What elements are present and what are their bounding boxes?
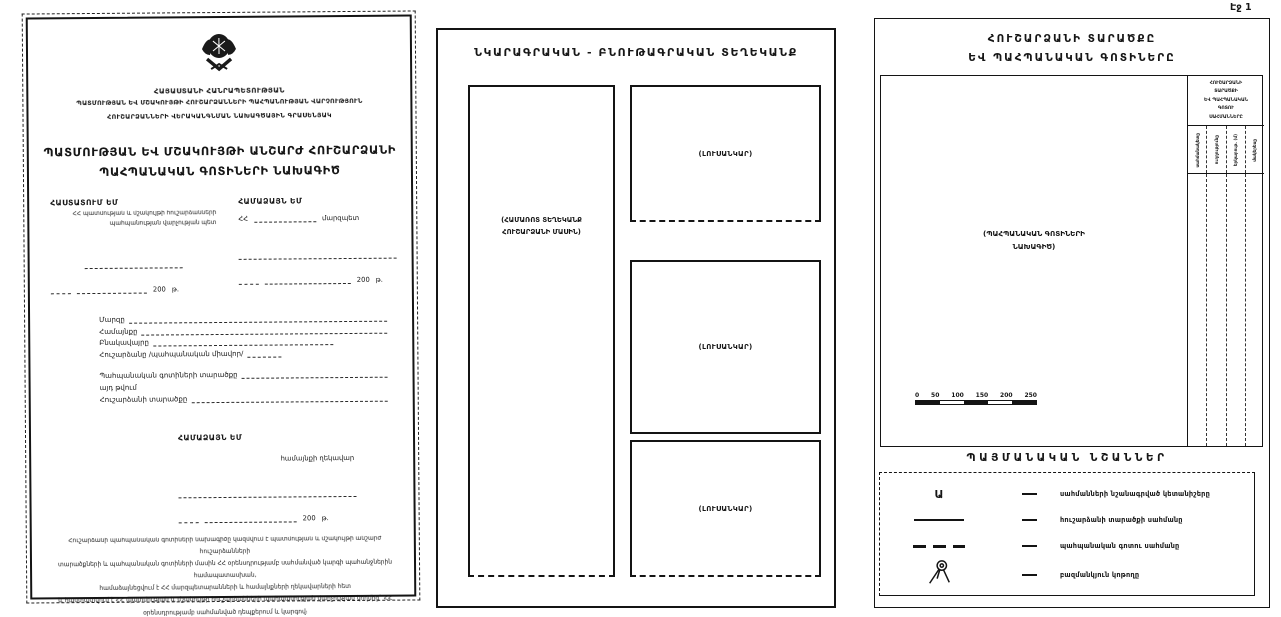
signature-line [178, 482, 368, 502]
table-header-line: ՀՈՒՇԱՐՁԱՆԻ [1189, 80, 1263, 88]
field-label: Պահպանական գոտիների տարածքը [100, 371, 242, 380]
community-head-role: համայնքի ղեկավար [178, 454, 368, 463]
approve-heading: ՀԱՍՏԱՏՈՒՄ ԵՄ [50, 197, 216, 207]
page-3-title: ՀՈՒՇԱՐՁԱՆԻ ՏԱՐԱԾՔԸ ԵՎ ՊԱՀՊԱՆԱԿԱՆ ԳՈՏԻՆԵՐ… [875, 30, 1269, 68]
field-fill-line [153, 337, 333, 346]
page-3-plan-sheet: ՀՈՒՇԱՐՁԱՆԻ ՏԱՐԱԾՔԸ ԵՎ ՊԱՀՊԱՆԱԿԱՆ ԳՈՏԻՆԵՐ… [874, 18, 1270, 608]
year-placeholder: 200 [303, 514, 316, 522]
scale-tick: 150 [976, 392, 989, 399]
photo-label: (ԼՈՒՍԱՆԿԱՐ) [699, 343, 753, 351]
field-row: այդ թվում [100, 382, 388, 392]
legend-title: ՊԱՅՄԱՆԱԿԱՆ ՆՇԱՆՆԵՐ [875, 452, 1259, 464]
field-row: Պահպանական գոտիների տարածքը [100, 370, 388, 380]
governor-line: ՀՀ մարզպետ [238, 214, 404, 223]
field-row: Համայնքը [99, 325, 387, 335]
legend-separator-dash [1022, 519, 1037, 521]
date-line: 200 թ. [51, 285, 217, 294]
brief-information-label-line: (ՀԱՄԱՌՈՏ ՏԵՂԵԿԱՆՔ [474, 215, 609, 227]
table-header-line: ԳՈՏՈՒ [1189, 105, 1263, 113]
approve-signature-block: ՀԱՍՏԱՏՈՒՄ ԵՄ ՀՀ պատմության և մշակույթի հ… [50, 197, 217, 294]
armenia-coat-of-arms-icon [198, 31, 240, 77]
legend-entry-text: բազմանկյուն կոթողը [1060, 571, 1254, 579]
brief-information-box: (ՀԱՄԱՌՈՏ ՏԵՂԵԿԱՆՔ ՀՈՒՇԱՐՁԱՆԻ ՄԱՍԻՆ) [468, 85, 615, 577]
legend-row: պահպանական գոտու սահմանը [880, 533, 1254, 559]
scale-tick: 0 [915, 392, 919, 399]
boundaries-table-header: ՀՈՒՇԱՐՁԱՆԻ ՏԱՐԱԾՔԻ ԵՎ ՊԱՀՊԱՆԱԿԱՆ ԳՈՏՈՒ Ս… [1188, 76, 1264, 126]
table-header-line: ԵՎ ՊԱՀՊԱՆԱԿԱՆ [1189, 97, 1263, 105]
scale-tick: 100 [951, 392, 964, 399]
scanned-document-sheet: ՀԱՅԱՍՏԱՆԻ ՀԱՆՐԱՊԵՏՈՒԹՅԱՆ ՊԱՏՄՈՒԹՅԱՆ ԵՎ Մ… [0, 0, 1281, 617]
scale-tick-labels: 0 50 100 150 200 250 [915, 392, 1037, 399]
legend-entry-text: պահպանական գոտու սահմանը [1060, 542, 1254, 550]
field-row: Մարզը [99, 314, 387, 324]
signature-line [239, 244, 405, 264]
plan-area-label-line: (ՊԱՀՊԱՆԱԿԱՆ ԳՈՏԻՆԵՐԻ [881, 228, 1187, 241]
year-suffix: թ. [322, 514, 329, 522]
plan-area-label: (ՊԱՀՊԱՆԱԿԱՆ ԳՈՏԻՆԵՐԻ ՆԱԽԱԳԻԾ) [881, 228, 1187, 253]
field-fill-line [191, 393, 388, 403]
boundaries-table: ՀՈՒՇԱՐՁԱՆԻ ՏԱՐԱԾՔԻ ԵՎ ՊԱՀՊԱՆԱԿԱՆ ԳՈՏՈՒ Ս… [1187, 76, 1264, 446]
agree-heading: ՀԱՄԱՁԱՅՆ ԵՄ [178, 432, 368, 442]
agree-community-block: ՀԱՄԱՁԱՅՆ ԵՄ համայնքի ղեկավար 200 թ. [178, 432, 369, 523]
table-header-line: ՍԱՀՄԱՆՆԵՐԸ [1189, 114, 1263, 122]
legend-row: Ա սահմանների նշանագրված կետանիշերը [880, 481, 1254, 507]
footnote-line: տարածքների և պահպանական գոտիների մասին Հ… [51, 557, 399, 584]
photo-box: (ԼՈՒՍԱՆԿԱՐ) [630, 260, 821, 434]
table-header-line: ՏԱՐԱԾՔԻ [1189, 88, 1263, 96]
page-2-descriptive-sheet: ՆԿԱՐԱԳՐԱԿԱՆ - ԲՆՈՒԹԱԳՐԱԿԱՆ ՏԵՂԵԿԱՆՔ (ՀԱՄ… [436, 28, 836, 608]
legend-box: Ա սահմանների նշանագրված կետանիշերը հուշա… [879, 472, 1255, 596]
year-placeholder: 200 [153, 285, 166, 293]
plan-drawing-frame: (ՊԱՀՊԱՆԱԿԱՆ ԳՈՏԻՆԵՐԻ ՆԱԽԱԳԻԾ) 0 50 100 1… [880, 75, 1263, 447]
field-row: Հուշարձանը /պահպանական միավոր/ [99, 348, 387, 358]
plan-area-label-line: ՆԱԽԱԳԻԾ) [881, 241, 1187, 254]
issuing-organization-block: ՀԱՅԱՍՏԱՆԻ ՀԱՆՐԱՊԵՏՈՒԹՅԱՆ ՊԱՏՄՈՒԹՅԱՆ ԵՎ Մ… [23, 85, 415, 121]
brief-information-label: (ՀԱՄԱՌՈՏ ՏԵՂԵԿԱՆՔ ՀՈՒՇԱՐՁԱՆԻ ՄԱՍԻՆ) [474, 215, 609, 238]
governor-role: մարզպետ [322, 214, 359, 222]
page-number-label: Էջ 1 [1230, 2, 1252, 13]
field-label: այդ թվում [100, 384, 141, 392]
legend-entry-text: հուշարձանի տարածքի սահմանը [1060, 516, 1254, 524]
org-line: ՊԱՏՄՈՒԹՅԱՆ ԵՎ ՄՇԱԿՈՒՅԹԻ ՀՈՒՇԱՐՁԱՆՆԵՐԻ ՊԱ… [23, 97, 415, 107]
brief-information-label-line: ՀՈՒՇԱՐՁԱՆԻ ՄԱՍԻՆ) [474, 227, 609, 239]
footnote-paragraph: Հուշարձանի պահպանական գոտիների նախագիծը … [51, 533, 400, 617]
field-label: Հուշարձանի տարածքը [100, 395, 192, 404]
column-header: սահմանակետը [1195, 133, 1200, 168]
document-title-line: ՊԱՀՊԱՆԱԿԱՆ ԳՈՏԻՆԵՐԻ ՆԱԽԱԳԻԾ [24, 160, 416, 183]
scale-strip [915, 400, 1037, 405]
legend-separator-dash [1022, 493, 1037, 495]
field-row: Բնակավայրը [99, 337, 387, 347]
protective-zones-plan-area: (ՊԱՀՊԱՆԱԿԱՆ ԳՈՏԻՆԵՐԻ ՆԱԽԱԳԻԾ) 0 50 100 1… [881, 76, 1187, 446]
column-header: երկարութ. (մ) [1233, 134, 1238, 166]
photo-box: (ԼՈՒՍԱՆԿԱՐ) [630, 440, 821, 577]
page-2-title: ՆԿԱՐԱԳՐԱԿԱՆ - ԲՆՈՒԹԱԳՐԱԿԱՆ ՏԵՂԵԿԱՆՔ [438, 46, 834, 59]
map-scale-bar: 0 50 100 150 200 250 [915, 392, 1037, 405]
approve-subtitle: ՀՀ պատմության և մշակույթի հուշարձանների … [50, 209, 216, 230]
field-label: Բնակավայրը [99, 339, 153, 347]
monument-fields-list: Մարզը Համայնքը Բնակավայրը Հուշարձանը /պա… [99, 314, 388, 407]
approve-subtitle-line: պահպանության վարչության պետ [50, 219, 216, 230]
legend-entry-text: սահմանների նշանագրված կետանիշերը [1060, 490, 1254, 498]
photo-box: (ԼՈՒՍԱՆԿԱՐ) [630, 85, 821, 222]
tripod-marker-icon [925, 559, 953, 591]
country-prefix: ՀՀ [238, 215, 248, 223]
boundary-point-letter-symbol: Ա [935, 488, 944, 501]
page-1-cover-sheet: ՀԱՅԱՍՏԱՆԻ ՀԱՆՐԱՊԵՏՈՒԹՅԱՆ ՊԱՏՄՈՒԹՅԱՆ ԵՎ Մ… [22, 10, 421, 603]
footnote-line: Հուշարձանի պահպանական գոտիների նախագիծը … [51, 533, 399, 560]
document-title: ՊԱՏՄՈՒԹՅԱՆ ԵՎ ՄՇԱԿՈՒՅԹԻ ԱՆՇԱՐԺ ՀՈՒՇԱՐՁԱՆ… [24, 139, 416, 182]
scale-tick: 50 [931, 392, 939, 399]
document-title-line: ՊԱՏՄՈՒԹՅԱՆ ԵՎ ՄՇԱԿՈՒՅԹԻ ԱՆՇԱՐԺ ՀՈՒՇԱՐՁԱՆ… [24, 139, 416, 162]
agree-heading: ՀԱՄԱՁԱՅՆ ԵՄ [238, 196, 404, 206]
photo-label: (ԼՈՒՍԱՆԿԱՐ) [699, 505, 753, 513]
legend-row: հուշարձանի տարածքի սահմանը [880, 507, 1254, 533]
table-column-headers: սահմանակետը ուղղությունը երկարութ. (մ) մ… [1188, 126, 1264, 174]
year-suffix: թ. [376, 276, 383, 284]
field-label: Հուշարձանը /պահպանական միավոր/ [99, 350, 247, 359]
org-line: ՀԱՅԱՍՏԱՆԻ ՀԱՆՐԱՊԵՏՈՒԹՅԱՆ [23, 85, 415, 96]
year-suffix: թ. [172, 285, 179, 293]
column-header: մակերեսը [1252, 139, 1257, 162]
field-label: Մարզը [99, 316, 129, 324]
table-empty-body [1188, 174, 1264, 446]
solid-boundary-line-symbol [914, 519, 964, 521]
dashed-boundary-line-symbol [913, 545, 965, 548]
date-line: 200 թ. [179, 514, 369, 523]
field-fill-line [242, 370, 388, 379]
field-fill-line [141, 325, 387, 335]
date-line: 200 թ. [239, 276, 405, 285]
photo-label: (ԼՈՒՍԱՆԿԱՐ) [699, 150, 753, 158]
field-row: Հուշարձանի տարածքը [100, 393, 388, 403]
field-label: Համայնքը [99, 327, 141, 335]
agree-governor-block: ՀԱՄԱՁԱՅՆ ԵՄ ՀՀ մարզպետ 200 թ. [238, 196, 405, 285]
year-placeholder: 200 [357, 276, 370, 284]
legend-row: բազմանկյուն կոթողը [880, 559, 1254, 585]
signature-line [51, 253, 217, 273]
page-3-title-line: ՀՈՒՇԱՐՁԱՆԻ ՏԱՐԱԾՔԸ [875, 30, 1269, 49]
page-3-title-line: ԵՎ ՊԱՀՊԱՆԱԿԱՆ ԳՈՏԻՆԵՐԸ [875, 49, 1269, 68]
field-fill-line [247, 349, 281, 357]
scale-tick: 200 [1000, 392, 1013, 399]
column-header: ուղղությունը [1214, 135, 1219, 164]
scale-tick: 250 [1024, 392, 1037, 399]
legend-separator-dash [1022, 545, 1037, 547]
legend-separator-dash [1022, 574, 1037, 576]
field-fill-line [129, 314, 387, 324]
